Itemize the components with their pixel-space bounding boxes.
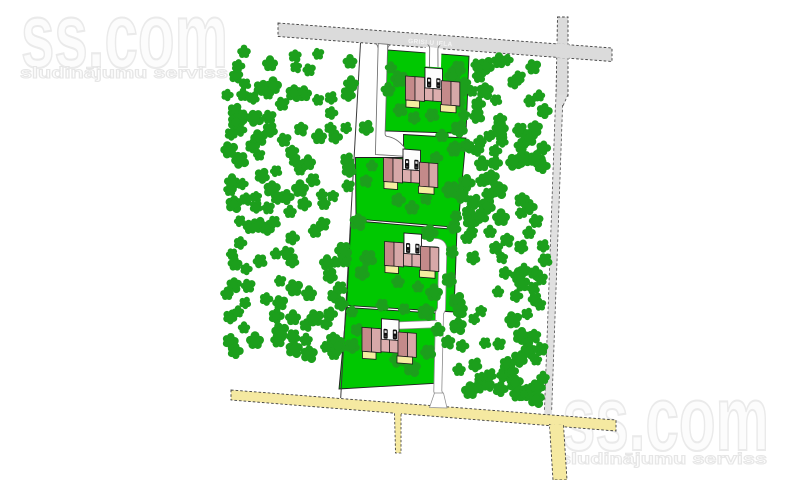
svg-text:sludinājumu serviss: sludinājumu serviss — [20, 65, 228, 82]
svg-text:sludinājumu serviss: sludinājumu serviss — [559, 451, 767, 468]
